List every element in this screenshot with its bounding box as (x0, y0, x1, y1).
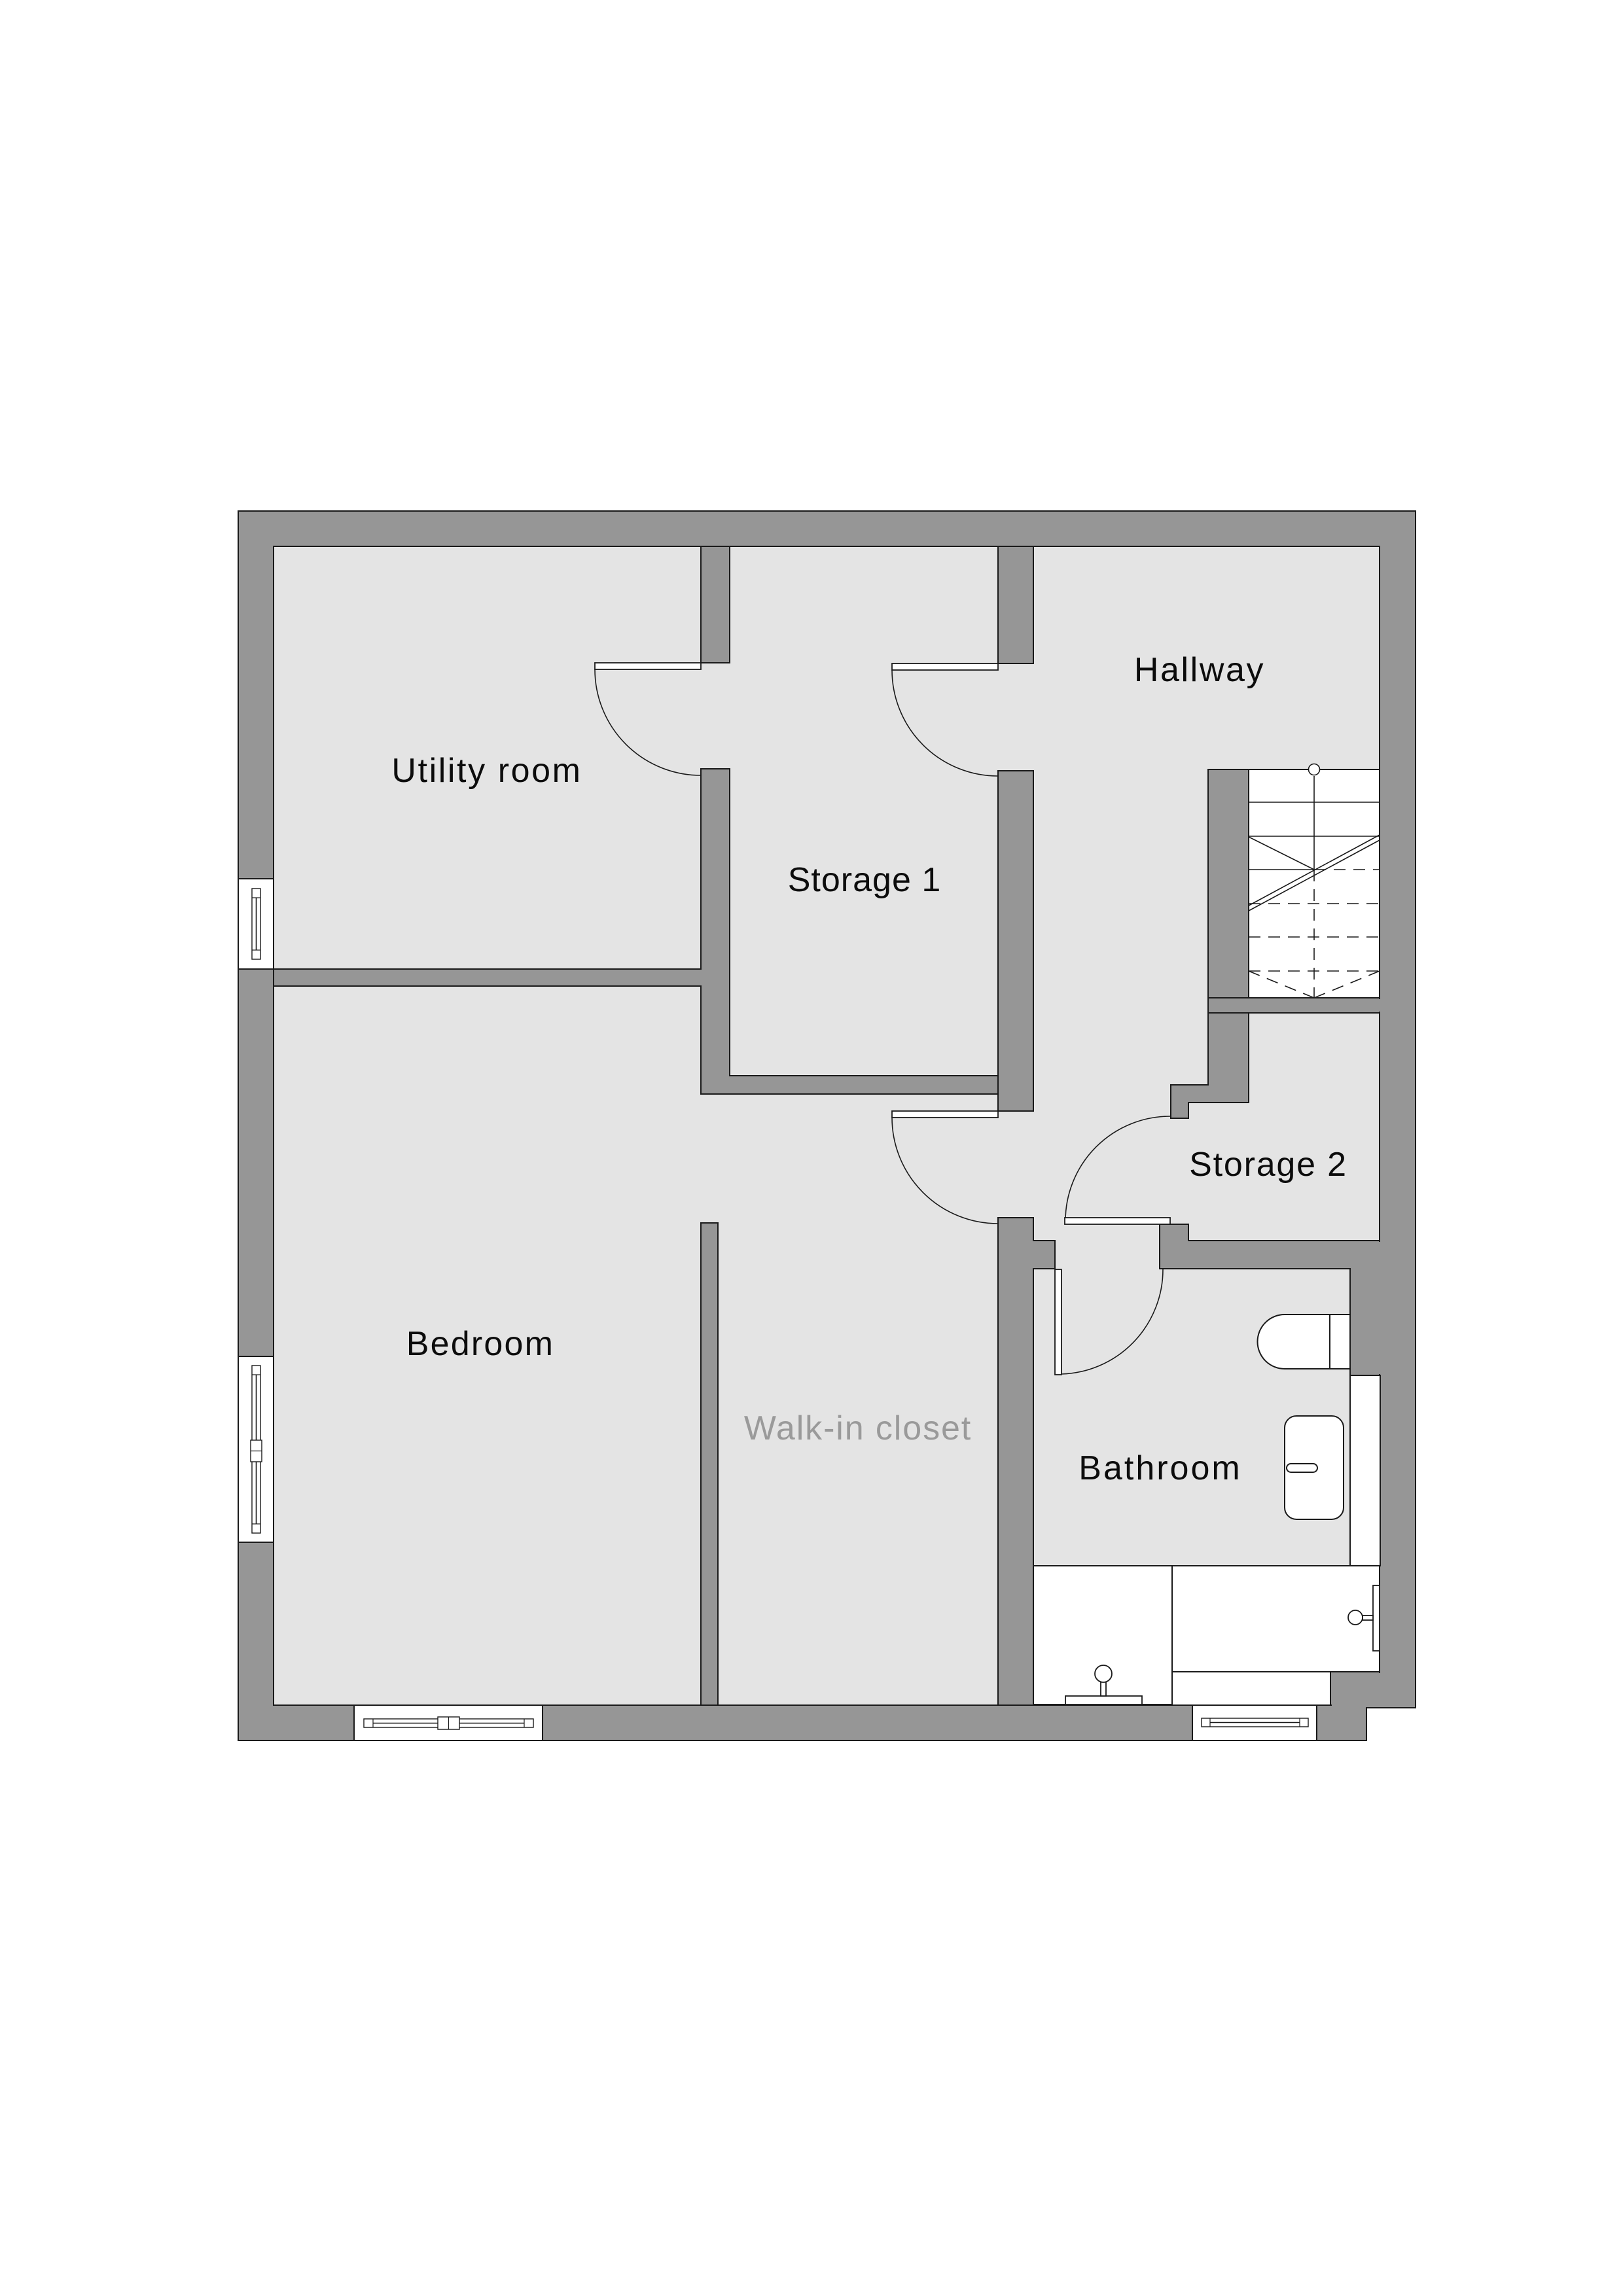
svg-text:Bedroom: Bedroom (406, 1325, 554, 1363)
svg-text:Hallway: Hallway (1134, 651, 1265, 689)
svg-text:Utility room: Utility room (391, 752, 582, 790)
svg-text:Walk-in closet: Walk-in closet (744, 1409, 972, 1447)
svg-text:Storage 2: Storage 2 (1189, 1146, 1347, 1184)
svg-text:Bathroom: Bathroom (1079, 1449, 1241, 1487)
svg-text:Storage 1: Storage 1 (788, 861, 942, 899)
